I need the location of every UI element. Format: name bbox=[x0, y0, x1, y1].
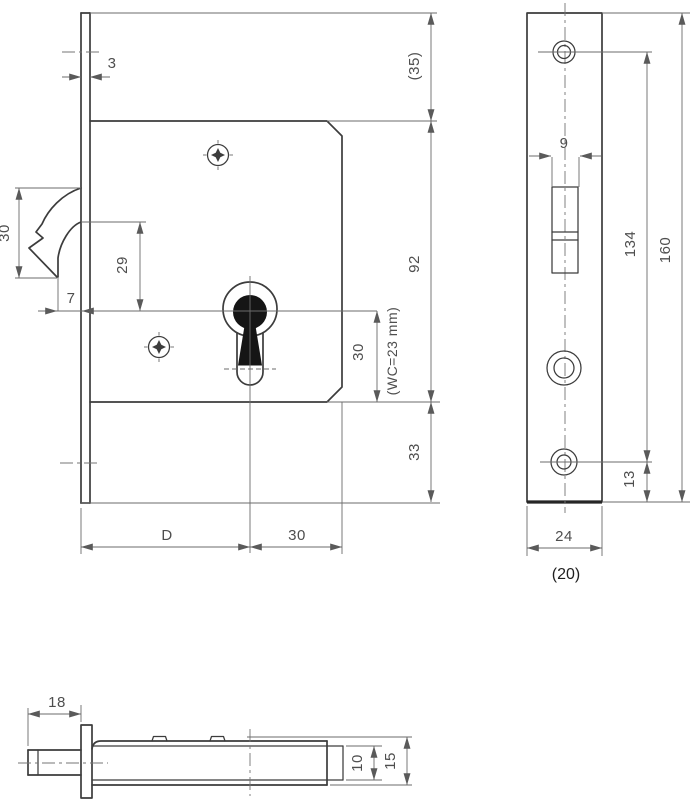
dim-label: (35) bbox=[406, 52, 423, 81]
dim-label: 33 bbox=[406, 443, 423, 461]
dim-label: 160 bbox=[657, 237, 674, 264]
dim-case-height: 92 bbox=[406, 121, 431, 402]
hook-slot bbox=[552, 157, 579, 273]
dim-label: D bbox=[161, 527, 172, 544]
dim-label: 30 bbox=[350, 343, 367, 361]
dim-label: 13 bbox=[621, 470, 638, 488]
dim-label: 3 bbox=[108, 55, 117, 72]
dim-case-thickness: 10 bbox=[346, 746, 382, 780]
dim-key-offset: 29 bbox=[114, 222, 140, 311]
dim-hole-spacing: 134 bbox=[622, 52, 647, 462]
dim-backset: D bbox=[81, 527, 250, 547]
faceplate-front-view: 9 134 13 160 24 (20) bbox=[527, 3, 690, 583]
dim-label: 134 bbox=[622, 231, 639, 258]
lock-technical-drawing: 3 30 7 29 (35) 92 33 bbox=[0, 0, 694, 800]
case-top-view bbox=[92, 729, 343, 796]
dim-label: 9 bbox=[560, 135, 569, 152]
dim-label: 18 bbox=[48, 694, 66, 711]
faceplate-edge bbox=[60, 13, 103, 503]
dim-label: 92 bbox=[406, 255, 423, 273]
dim-overall-thickness: 15 bbox=[247, 737, 412, 785]
dim-hook-height: 30 bbox=[0, 188, 19, 278]
hook-bolt bbox=[29, 188, 81, 277]
dim-bottom-margin: 33 bbox=[406, 402, 431, 502]
dim-note: (WC=23 mm) bbox=[384, 307, 400, 396]
dim-label: 24 bbox=[555, 528, 573, 545]
dim-center-to-back: 30 bbox=[250, 527, 342, 547]
faceplate-outline bbox=[527, 13, 602, 502]
side-view: 3 30 7 29 (35) 92 33 bbox=[0, 13, 440, 554]
technical-drawing-page: 3 30 7 29 (35) 92 33 bbox=[0, 0, 694, 800]
dim-label: 29 bbox=[114, 256, 131, 274]
dim-label-alt: (20) bbox=[552, 566, 580, 583]
dim-key-to-case-bottom: 30 (WC=23 mm) bbox=[350, 307, 400, 402]
dim-hook-tip: 7 bbox=[40, 290, 100, 311]
dim-top-margin: (35) bbox=[406, 13, 431, 121]
faceplate-top-view bbox=[81, 725, 92, 798]
dim-plate-width: 24 (20) bbox=[527, 528, 602, 583]
spindle-hole-icon bbox=[547, 351, 581, 385]
dim-label: 30 bbox=[288, 527, 306, 544]
top-view: 18 10 15 bbox=[18, 694, 412, 798]
dim-plate-length: 160 bbox=[657, 13, 682, 502]
dim-label: 15 bbox=[382, 752, 399, 770]
dim-label: 30 bbox=[0, 224, 13, 242]
dim-label: 10 bbox=[349, 754, 366, 772]
dim-label: 7 bbox=[67, 290, 76, 307]
hook-top-view bbox=[28, 750, 81, 775]
dim-hook-protrusion: 18 bbox=[28, 694, 81, 746]
dim-bottom-hole-offset: 13 bbox=[621, 462, 647, 502]
phillips-screw-icon bbox=[203, 140, 233, 170]
phillips-screw-icon bbox=[144, 332, 174, 362]
